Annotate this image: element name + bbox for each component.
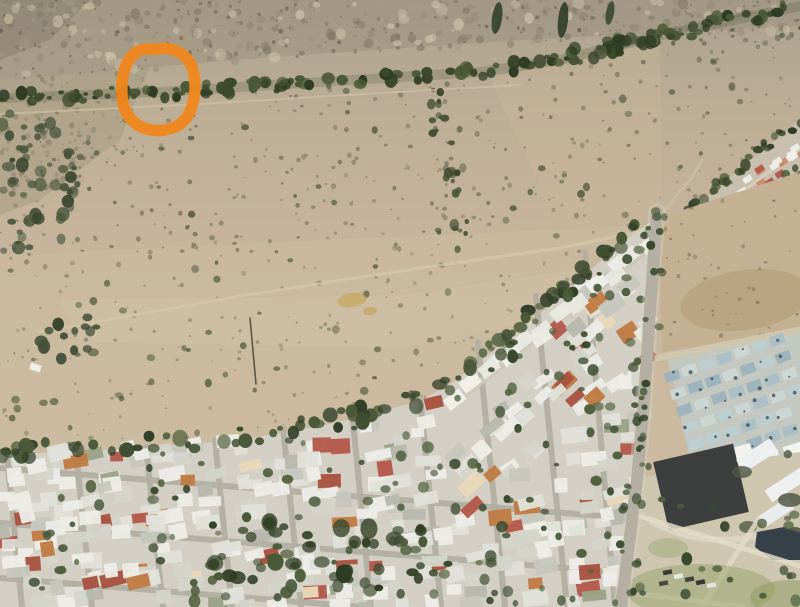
- aerial-scene: [0, 0, 800, 607]
- aerial-photo: [0, 0, 800, 607]
